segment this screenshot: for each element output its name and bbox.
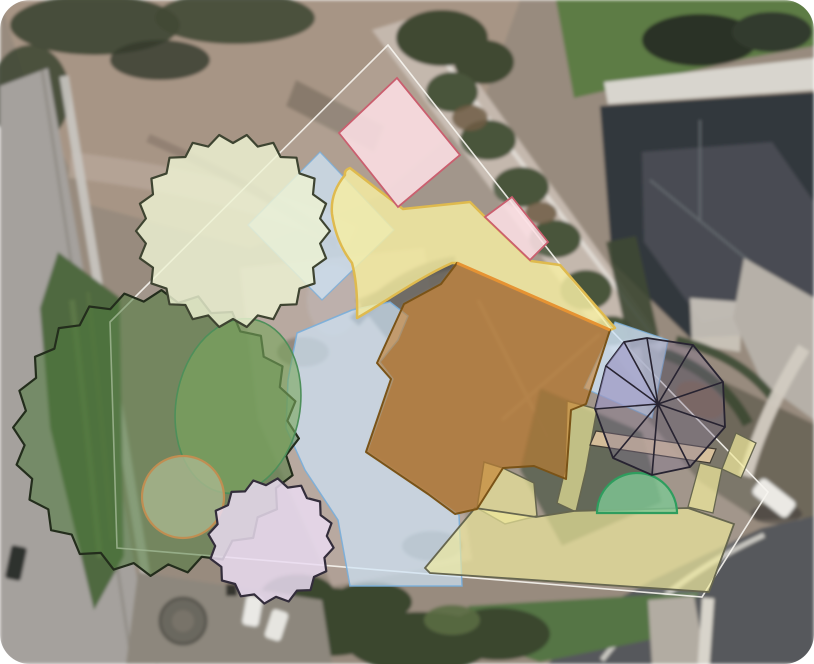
shrub-circle-tan[interactable] xyxy=(142,456,224,538)
mulch-patch xyxy=(452,105,488,131)
neighbor-trees xyxy=(732,12,812,52)
plants-bottom-light xyxy=(424,605,480,635)
design-plan-svg xyxy=(0,0,814,664)
paver-circle-center xyxy=(172,610,194,632)
shrubs-top xyxy=(110,40,210,80)
landscape-design-canvas xyxy=(0,0,814,664)
plants-bottom xyxy=(332,582,412,622)
